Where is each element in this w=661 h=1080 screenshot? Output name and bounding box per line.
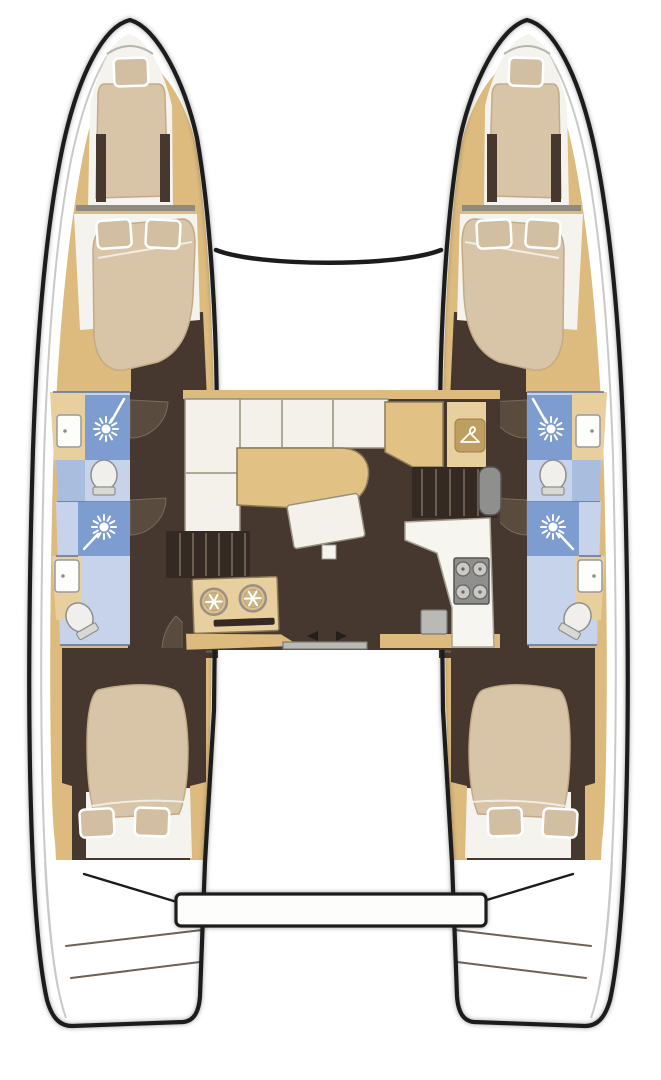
salon [166,390,501,650]
forward-head-sink [57,415,81,447]
galley-sink [421,610,447,634]
door-track [283,642,367,649]
forepeak-pillow [114,57,149,86]
forward-cabin-pillow-right [145,219,180,249]
port-forward-head [50,392,130,502]
aft-head-sink [55,560,79,592]
aft-cabin-pillow-left [79,808,114,838]
floor-plan-stage [0,0,661,1080]
salon-forward-cabinet [385,402,443,467]
salon-forward-band [183,390,500,399]
galley-basin-right [239,585,266,612]
hanging-locker [447,399,500,467]
forward-head-toilet [91,460,117,495]
companionway-rail [479,467,501,515]
hanger-icon-plate [455,419,485,452]
forward-crossbeam [216,250,441,263]
forepeak-divider [76,205,195,211]
aft-cabin-bed [87,685,188,818]
aft-cabin-pillow-right [135,807,170,836]
aft-platform [176,894,486,926]
port-companionway-steps [166,531,250,578]
forepeak-mattress [96,84,168,198]
catamaran-floor-plan [0,0,661,1080]
starboard-companionway-steps [412,467,501,518]
stove [454,558,489,604]
forward-cabin-pillow-left [96,219,132,249]
galley-basin-left [200,588,227,615]
port-aft-head [52,502,130,645]
port-aft-cabin [52,648,206,860]
